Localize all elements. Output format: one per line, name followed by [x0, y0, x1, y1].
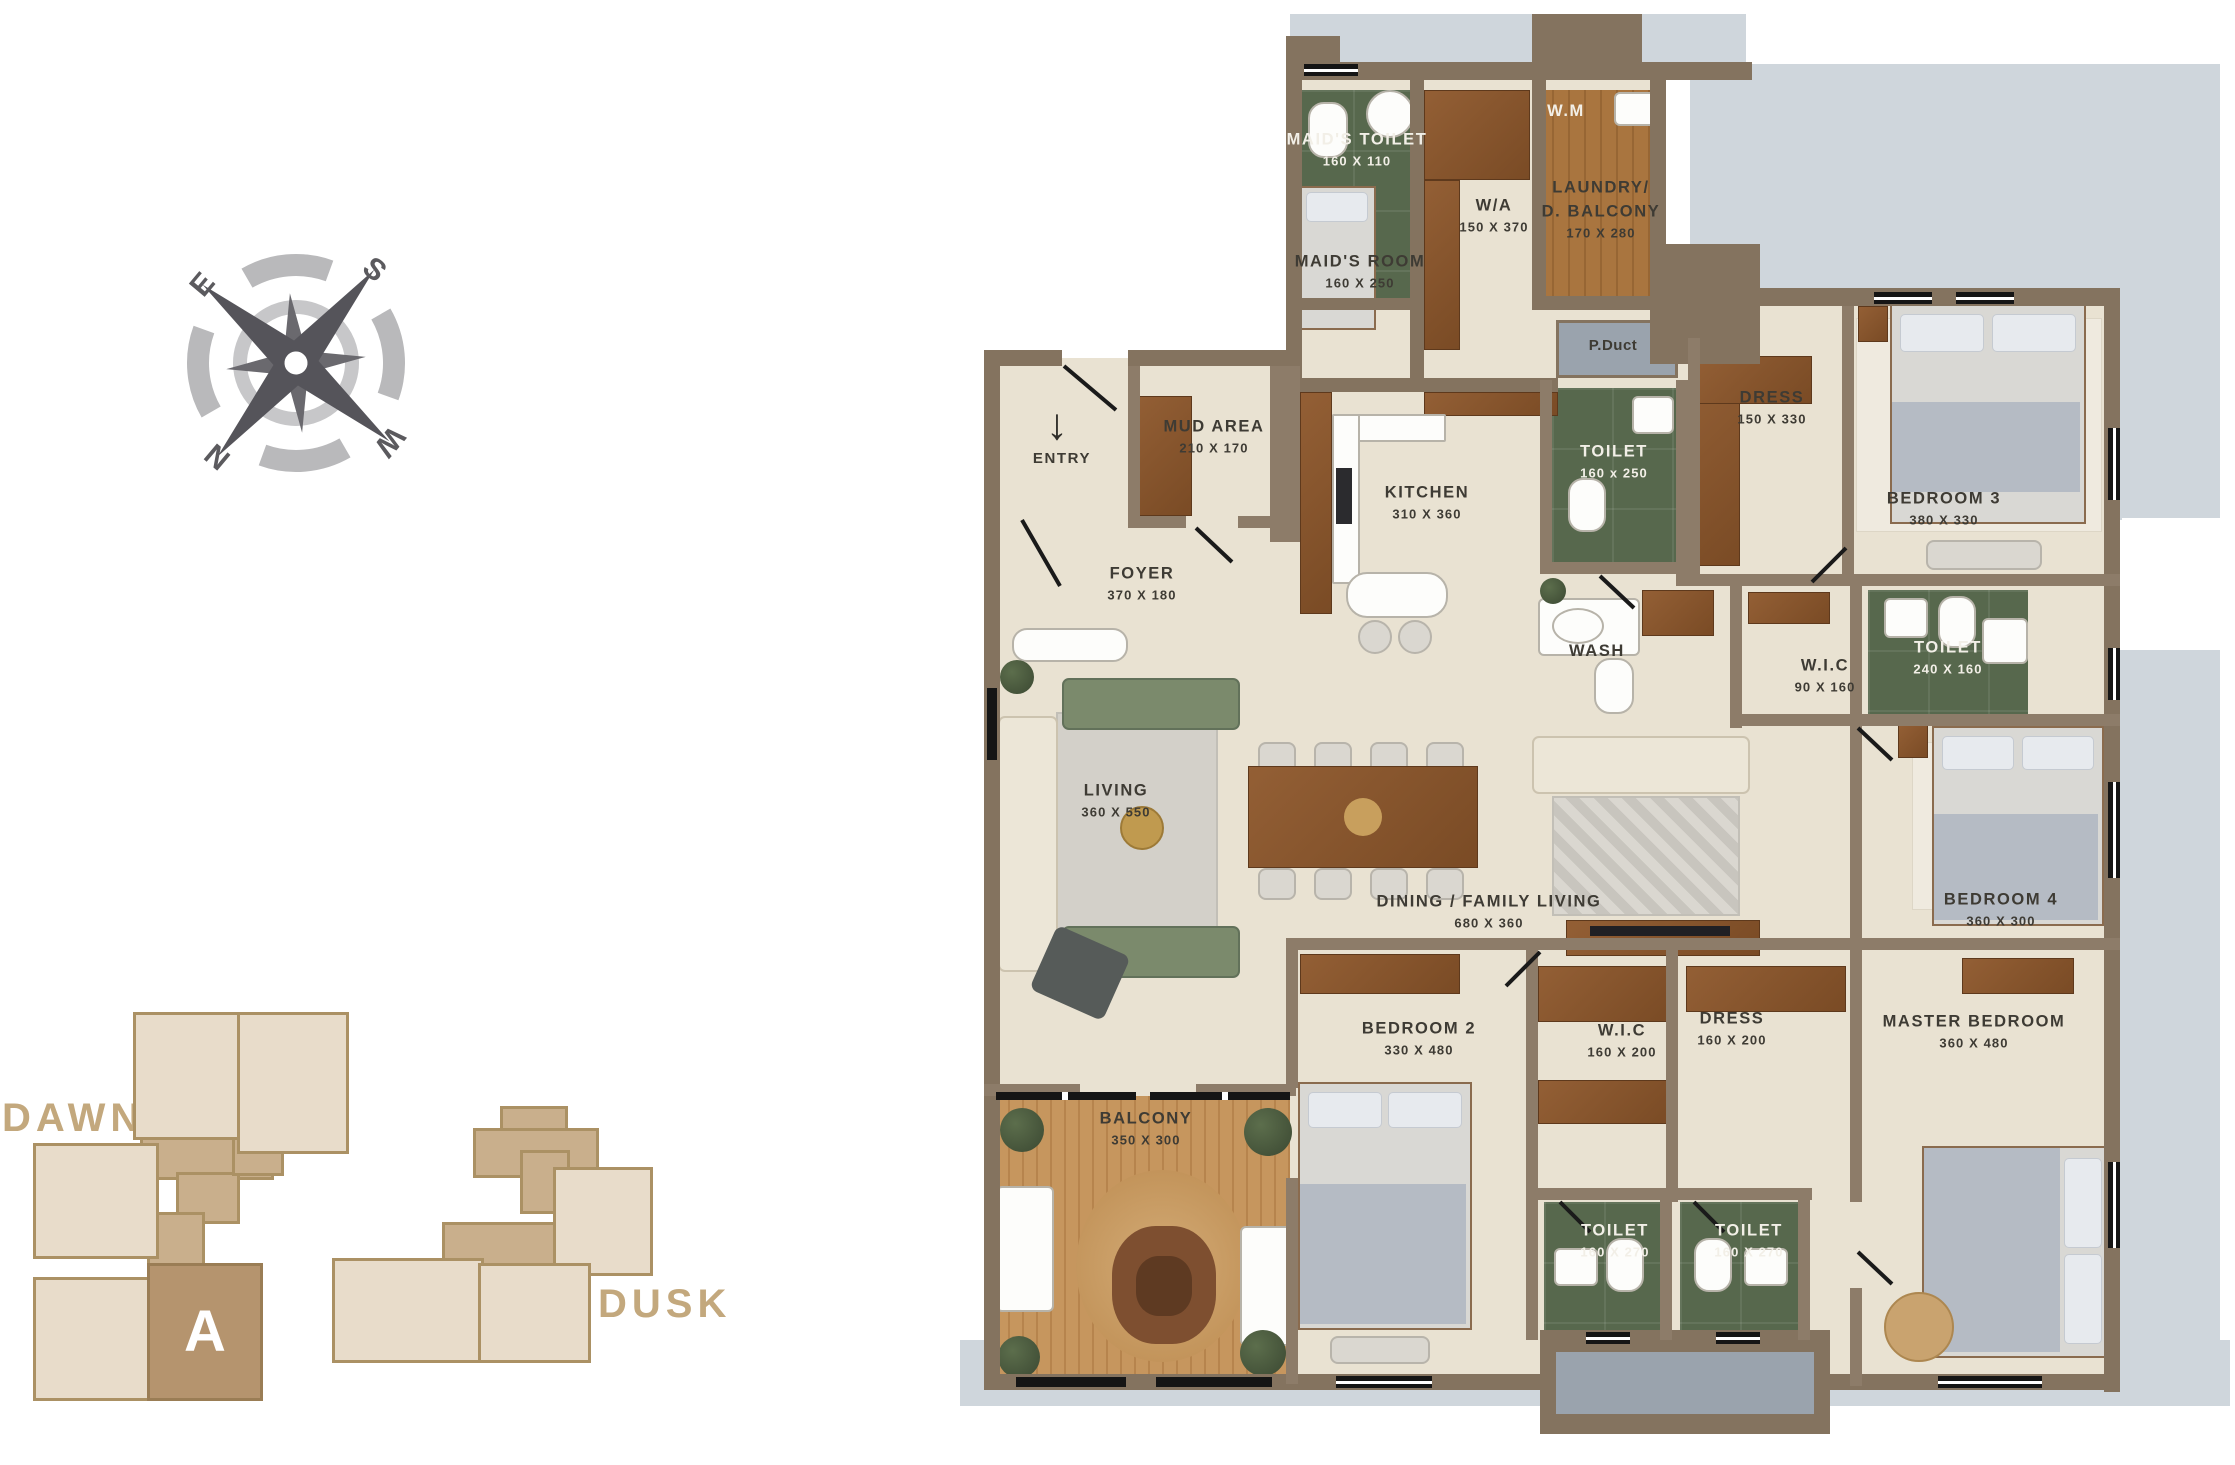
label-balcony: BALCONY350 X 300 — [1100, 1108, 1193, 1151]
label-maids-toilet: MAID'S TOILET160 X 110 — [1287, 129, 1428, 172]
label-toilet-b2: TOILET160 X 270 — [1580, 1220, 1649, 1263]
label-toilet-master: TOILET160 X 270 — [1714, 1220, 1783, 1263]
label-wash: WASH — [1569, 640, 1625, 664]
label-maids-room: MAID'S ROOM160 X 250 — [1295, 251, 1426, 294]
label-dress-master: DRESS160 X 200 — [1697, 1008, 1766, 1051]
label-mud-area: MUD AREA210 X 170 — [1163, 416, 1264, 459]
label-bedroom4: BEDROOM 4360 X 300 — [1944, 889, 2058, 932]
walls-layer — [0, 0, 2235, 1465]
label-wic-master: W.I.C160 X 200 — [1587, 1020, 1656, 1063]
label-bedroom3: BEDROOM 3380 X 330 — [1887, 488, 2001, 531]
label-foyer: FOYER370 X 180 — [1107, 563, 1176, 606]
label-wm: W.M — [1547, 100, 1585, 124]
label-p-duct: P.Duct — [1589, 335, 1638, 357]
label-master-bedroom: MASTER BEDROOM360 X 480 — [1883, 1011, 2066, 1054]
label-dress-b3: DRESS150 X 330 — [1737, 387, 1806, 430]
label-wa: W/A150 X 370 — [1459, 195, 1528, 238]
entry-arrow-icon: ↓ — [1046, 400, 1068, 450]
label-kitchen: KITCHEN310 X 360 — [1385, 482, 1470, 525]
label-living: LIVING360 X 550 — [1081, 780, 1150, 823]
label-toilet-b4: TOILET240 X 160 — [1913, 637, 1982, 680]
label-wic-b4: W.I.C90 X 160 — [1795, 655, 1856, 698]
label-entry: ENTRY — [1033, 448, 1091, 470]
label-toilet-common: TOILET160 x 250 — [1580, 441, 1648, 484]
label-bedroom2: BEDROOM 2330 X 480 — [1362, 1018, 1476, 1061]
label-laundry: LAUNDRY/D. BALCONY170 X 280 — [1542, 177, 1661, 244]
label-dining: DINING / FAMILY LIVING680 X 360 — [1377, 891, 1602, 934]
floor-plan-canvas: MAID'S TOILET160 X 110 MAID'S ROOM160 X … — [0, 0, 2235, 1465]
